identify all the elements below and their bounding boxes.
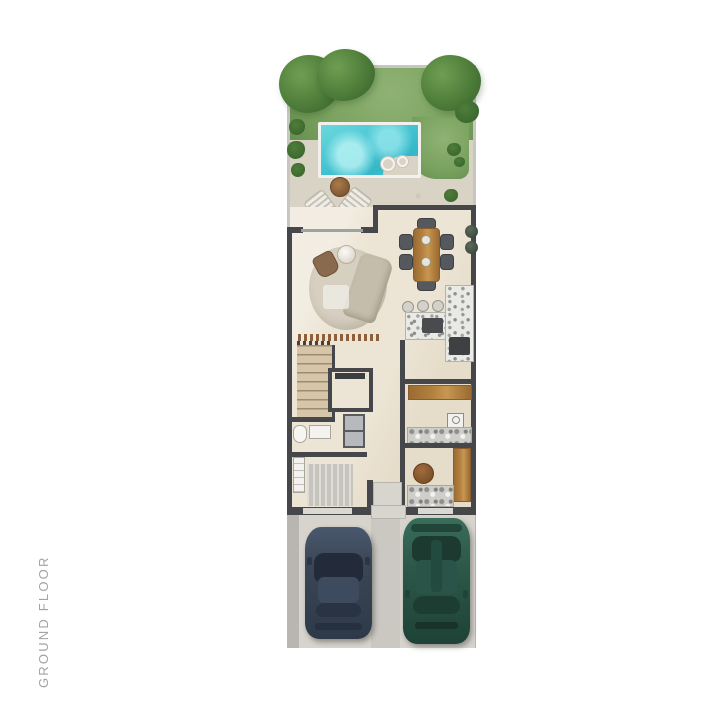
garage-door-left bbox=[303, 508, 352, 514]
bar-stool bbox=[417, 300, 429, 312]
car-mirror bbox=[365, 557, 370, 565]
cooktop bbox=[422, 318, 443, 333]
dining-chair bbox=[399, 254, 413, 270]
floor-label: GROUND FLOOR bbox=[36, 555, 51, 688]
floorplan-render: GROUND FLOOR bbox=[0, 0, 726, 726]
tv-slat-wall bbox=[298, 334, 380, 341]
sink bbox=[309, 425, 331, 439]
elevator-door bbox=[335, 373, 365, 379]
washer-door-icon bbox=[452, 416, 460, 424]
coffee-table bbox=[337, 245, 356, 264]
toilet bbox=[293, 425, 307, 443]
car-mirror bbox=[405, 590, 410, 598]
spa-jet-icon bbox=[381, 157, 395, 171]
plate-icon bbox=[421, 235, 431, 245]
wall-left bbox=[287, 227, 292, 515]
car-windshield bbox=[413, 596, 460, 614]
car-green bbox=[403, 518, 470, 644]
car-navy bbox=[305, 527, 372, 639]
car-roof-stripe bbox=[431, 540, 442, 592]
car-spoiler bbox=[411, 524, 462, 532]
wall bbox=[292, 417, 335, 422]
wood-partition bbox=[453, 448, 471, 502]
dining-chair bbox=[440, 254, 454, 270]
car-roof bbox=[318, 577, 359, 603]
plate-icon bbox=[421, 257, 431, 267]
wall bbox=[373, 205, 476, 210]
plant-pot-icon bbox=[465, 241, 478, 254]
front-walkway bbox=[371, 515, 400, 648]
wall bbox=[405, 379, 476, 384]
dining-chair bbox=[399, 234, 413, 250]
car-mirror bbox=[307, 557, 312, 565]
laundry-counter bbox=[408, 385, 472, 400]
bar-stool bbox=[432, 300, 444, 312]
plant-pot-icon bbox=[465, 225, 478, 238]
car-grille bbox=[315, 623, 362, 630]
car-mirror bbox=[463, 590, 468, 598]
ground-floor-plan bbox=[287, 57, 477, 650]
cabinet-divider bbox=[343, 430, 365, 432]
powder-terrazzo bbox=[407, 485, 454, 507]
wall bbox=[361, 227, 378, 233]
spa-jet-icon bbox=[397, 156, 408, 167]
dining-chair bbox=[440, 234, 454, 250]
car-rear-window bbox=[316, 603, 361, 617]
entrance-step bbox=[371, 505, 406, 519]
oven bbox=[449, 337, 470, 355]
storage-mat bbox=[307, 464, 353, 506]
throw-blanket bbox=[323, 285, 349, 309]
sliding-glass-door bbox=[301, 229, 363, 232]
car-grille bbox=[415, 622, 458, 629]
garage-door-right bbox=[418, 508, 453, 514]
powder-basin bbox=[413, 463, 434, 484]
shelf bbox=[293, 457, 305, 493]
